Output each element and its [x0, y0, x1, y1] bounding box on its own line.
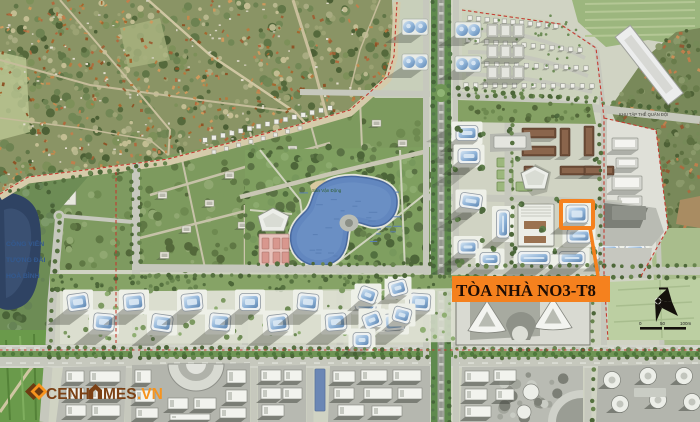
svg-text:MES: MES [103, 386, 137, 403]
svg-text:HOÀ BÌNH: HOÀ BÌNH [6, 271, 40, 280]
svg-text:100m: 100m [680, 321, 692, 326]
svg-text:TÒA NHÀ NO3-T8: TÒA NHÀ NO3-T8 [456, 281, 596, 300]
svg-text:CÔNG VIÊN: CÔNG VIÊN [6, 239, 44, 248]
svg-text:CENH: CENH [46, 386, 90, 403]
svg-text:Sân Vận Động: Sân Vận Động [312, 188, 342, 193]
svg-text:TƯỢNG ĐÀI: TƯỢNG ĐÀI [6, 255, 45, 264]
svg-text:.VN: .VN [137, 386, 163, 403]
svg-text:KHU TẬP THỂ QUÂN ĐỘI: KHU TẬP THỂ QUÂN ĐỘI [619, 112, 668, 117]
svg-text:50: 50 [660, 321, 666, 326]
